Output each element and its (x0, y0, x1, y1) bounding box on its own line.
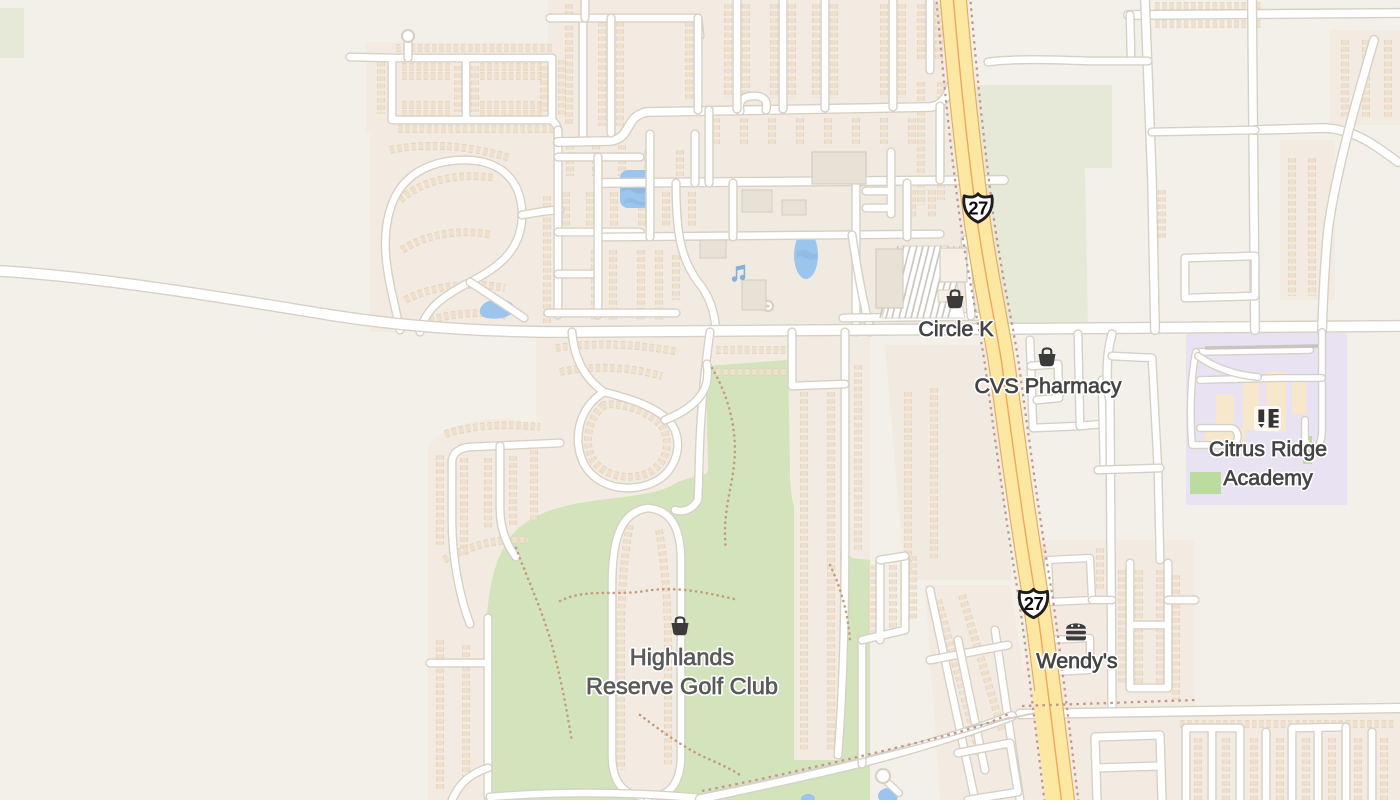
svg-text:Citrus Ridge: Citrus Ridge (1209, 437, 1327, 461)
svg-text:Highlands: Highlands (630, 644, 735, 670)
svg-text:27: 27 (1024, 593, 1044, 614)
svg-text:Wendy's: Wendy's (1036, 649, 1117, 673)
svg-text:Academy: Academy (1223, 466, 1313, 490)
svg-text:Circle K: Circle K (918, 317, 994, 341)
svg-text:Reserve Golf Club: Reserve Golf Club (586, 673, 778, 699)
svg-text:CVS Pharmacy: CVS Pharmacy (975, 374, 1122, 398)
svg-text:27: 27 (968, 198, 988, 219)
